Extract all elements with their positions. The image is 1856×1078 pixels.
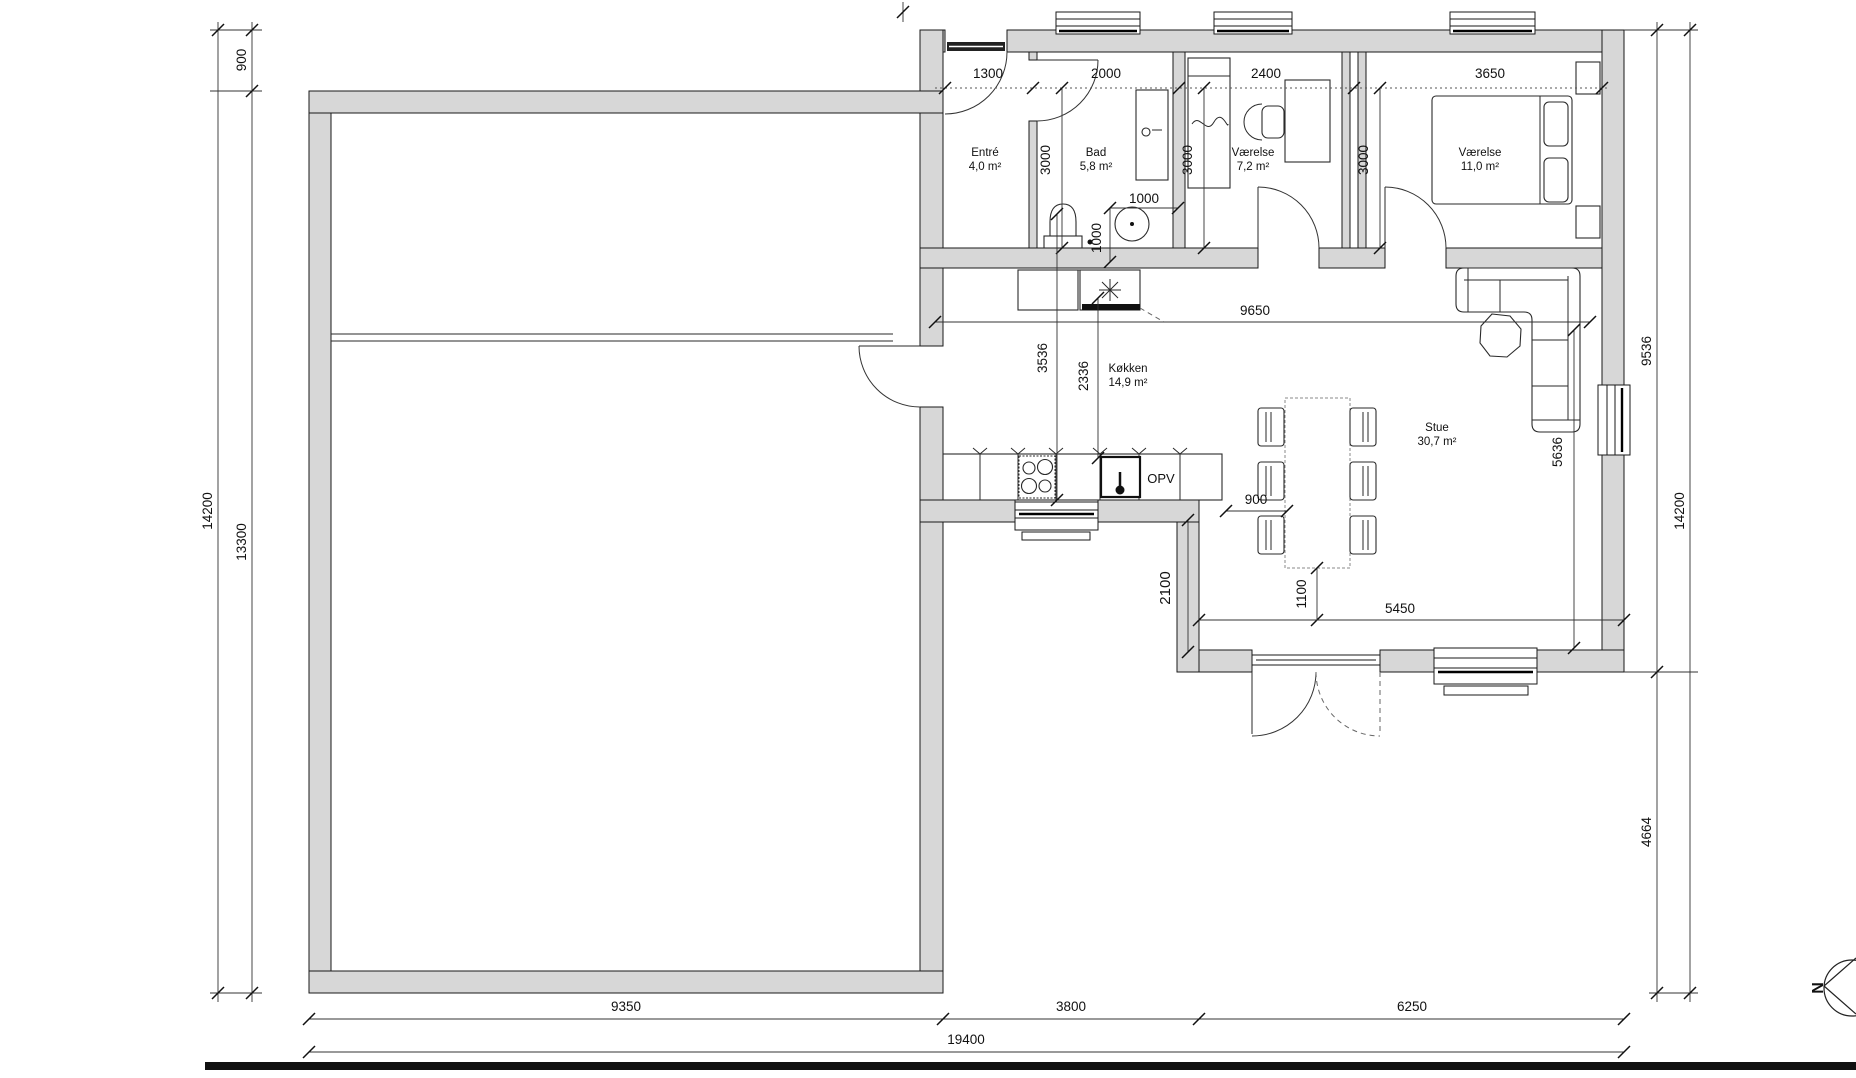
dim-bottom-mid: 3800	[1056, 999, 1086, 1014]
dim-kitchen-a: 3536	[1035, 343, 1050, 373]
floor-plan-svg: 1300 2000 2400 3650 3000 3000 3000 1000 …	[0, 0, 1856, 1078]
room-vaerelse2-area: 11,0 m²	[1461, 161, 1499, 173]
partition-entre-bad-stub	[1029, 52, 1037, 60]
terrace-door	[1252, 655, 1380, 736]
toilet	[1044, 204, 1093, 248]
dim-left-garage: 13300	[234, 523, 249, 561]
dim-depth-bad: 3000	[1038, 145, 1053, 175]
dim-right-lower: 4664	[1639, 816, 1654, 847]
dim-bath-width: 1000	[1129, 191, 1159, 206]
nightstand-top	[1576, 62, 1600, 94]
window-kitchen-south	[1015, 502, 1098, 540]
bed	[1432, 96, 1572, 204]
north-arrow-icon: N	[1810, 958, 1856, 1016]
kitchen-counter	[943, 448, 1222, 500]
desk-chair	[1244, 104, 1284, 140]
room-labels: Entré 4,0 m² Bad 5,8 m² Værelse 7,2 m² V…	[969, 147, 1502, 486]
dim-bath-depth: 1000	[1089, 223, 1104, 253]
dim-door-offset: 1100	[1294, 579, 1309, 608]
window-east	[1598, 385, 1630, 455]
dim-bottom-total: 19400	[947, 1032, 985, 1047]
room-vaerelse1-area: 7,2 m²	[1237, 161, 1270, 173]
garage-west-wall	[309, 91, 331, 993]
bathroom-vanity	[1136, 90, 1168, 180]
dim-bottom-stue: 6250	[1397, 999, 1427, 1014]
window-bad	[1056, 12, 1140, 34]
dryer-icon	[1099, 279, 1121, 301]
room-bad-area: 5,8 m²	[1080, 161, 1113, 173]
window-stue-south	[1434, 648, 1537, 695]
dim-top-bad: 2000	[1091, 66, 1121, 81]
dim-kitchen-b: 2336	[1076, 361, 1091, 391]
room-vaerelse2-name: Værelse	[1459, 147, 1502, 159]
room-entre-name: Entré	[971, 147, 999, 159]
dim-stue-width: 5450	[1385, 601, 1415, 616]
desk	[1285, 80, 1330, 162]
room-stue-area: 30,7 m²	[1418, 436, 1457, 448]
floor-plan-canvas: 1300 2000 2400 3650 3000 3000 3000 1000 …	[0, 0, 1856, 1078]
dim-top-entre: 1300	[973, 66, 1003, 81]
sink	[1101, 457, 1140, 497]
laundry-units	[1018, 270, 1164, 322]
side-table	[1480, 314, 1521, 357]
walls	[309, 30, 1624, 993]
dishwasher-label: OPV	[1147, 471, 1175, 486]
door-garage-kitchen	[859, 346, 920, 407]
dim-bottom-garage: 9350	[611, 999, 641, 1014]
dim-left-offset: 900	[234, 49, 249, 72]
corner-sofa	[1456, 268, 1580, 432]
dim-top-vaerelse1: 2400	[1251, 66, 1281, 81]
garage-south-wall	[309, 971, 943, 993]
dining-table	[1285, 398, 1350, 568]
furniture	[943, 58, 1600, 568]
dim-depth-vaerelse2: 3000	[1356, 145, 1371, 175]
room-entre-area: 4,0 m²	[969, 161, 1002, 173]
door-entre-bad	[1037, 60, 1098, 121]
dim-stue-depth: 5636	[1550, 437, 1565, 467]
room-koekken-name: Køkken	[1109, 363, 1148, 375]
dim-depth-vaerelse1: 3000	[1180, 145, 1195, 175]
dim-hall-width: 9650	[1240, 303, 1270, 318]
partition-vaerelse-double-a	[1342, 52, 1350, 248]
dim-left-total: 14200	[200, 492, 215, 530]
dim-right-upper: 9536	[1639, 336, 1654, 366]
dim-table-gap: 900	[1245, 492, 1268, 507]
room-stue-name: Stue	[1425, 422, 1449, 434]
window-vaerelse2	[1450, 12, 1535, 34]
door-vaerelse1	[1258, 187, 1319, 248]
garage-north-wall	[309, 91, 943, 113]
north-label: N	[1810, 982, 1827, 994]
dim-right-total: 14200	[1672, 492, 1687, 530]
dim-top-vaerelse2: 3650	[1475, 66, 1505, 81]
nightstand-bottom	[1576, 206, 1600, 238]
partition-entre-bad	[1029, 121, 1037, 248]
garage-divider	[331, 334, 893, 341]
washbasin	[1115, 207, 1149, 241]
room-koekken-area: 14,9 m²	[1109, 377, 1148, 389]
window-vaerelse1	[1214, 12, 1292, 34]
room-vaerelse1-name: Værelse	[1232, 147, 1275, 159]
dim-step: 2100	[1157, 571, 1174, 604]
sheet-border	[205, 1062, 1856, 1070]
room-bad-name: Bad	[1086, 147, 1106, 159]
